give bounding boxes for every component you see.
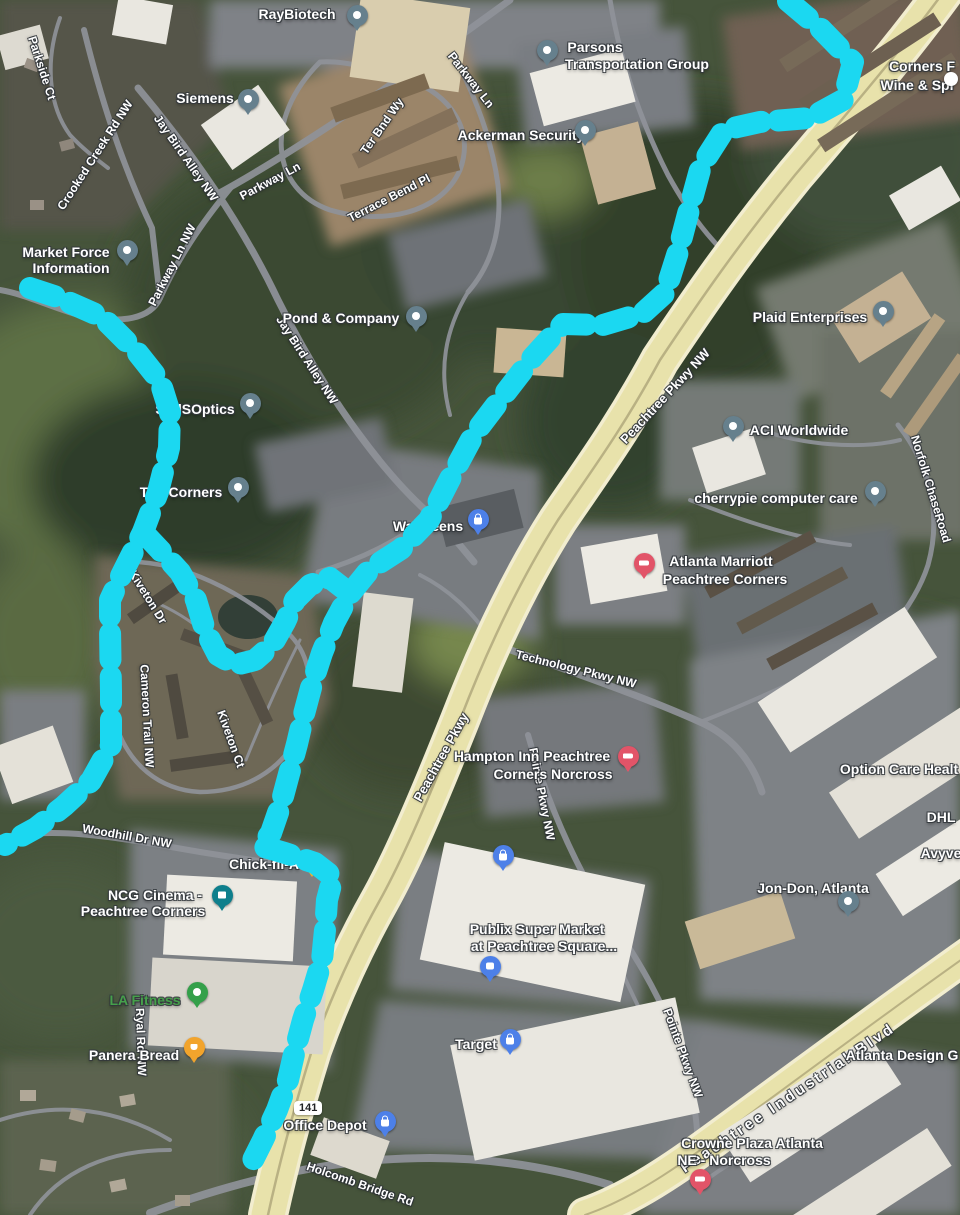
route-overlay — [0, 0, 960, 1215]
route-path-1 — [5, 288, 170, 845]
map-canvas[interactable]: Parkside CtCrooked Creek Rd NWJay Bird A… — [0, 0, 960, 1215]
